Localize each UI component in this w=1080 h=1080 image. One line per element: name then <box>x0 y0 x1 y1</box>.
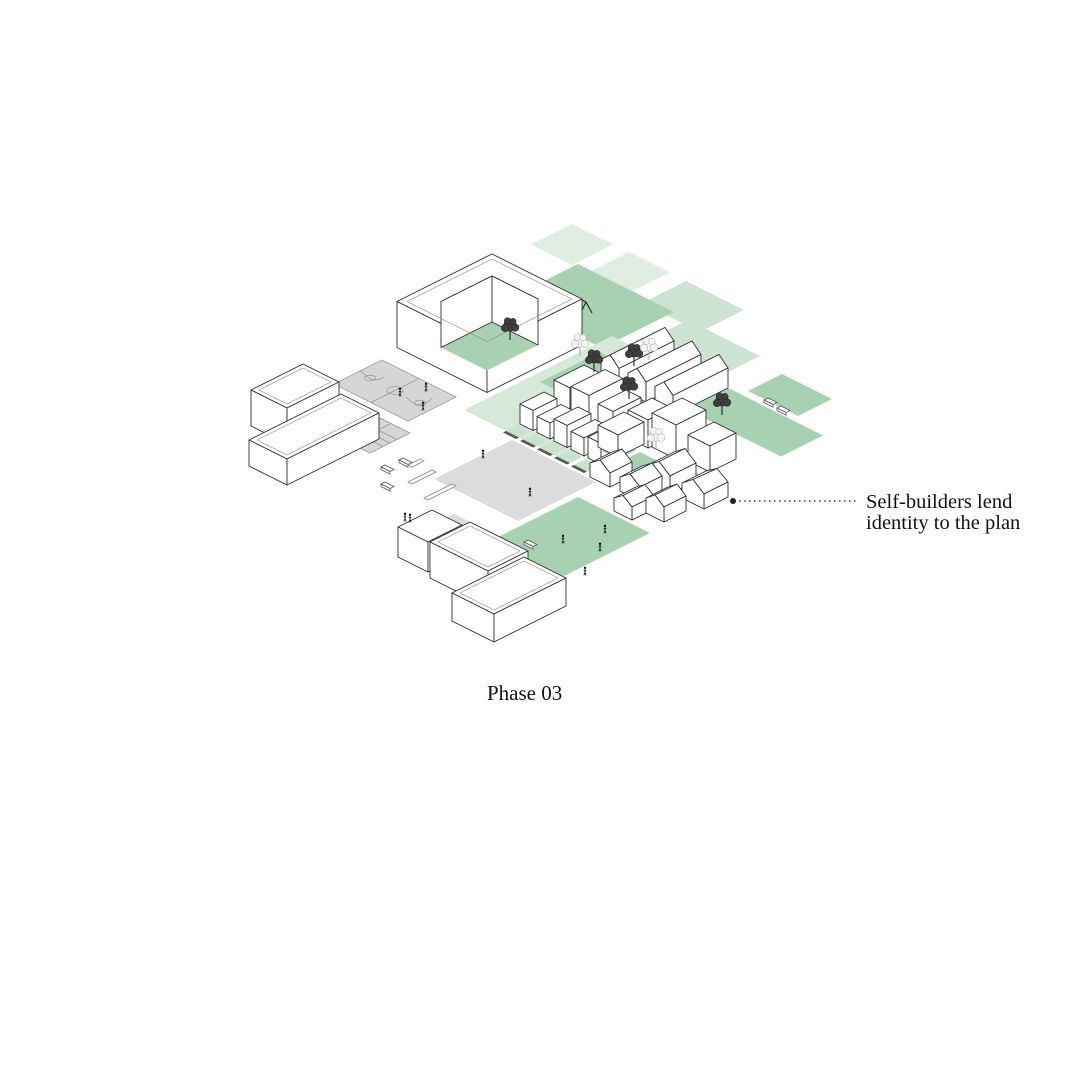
bench-icon <box>381 482 394 491</box>
person-icon <box>404 513 407 522</box>
annotation: Self-builders lend identity to the plan <box>730 491 1020 534</box>
person-icon <box>584 567 587 576</box>
axonometric-diagram: Self-builders lend identity to the plan … <box>0 0 1080 1080</box>
annotation-label-line2: identity to the plan <box>866 512 1020 534</box>
phase-caption: Phase 03 <box>487 681 562 705</box>
leader-dot <box>730 498 736 504</box>
bench-icon <box>381 465 394 474</box>
phase-diagram-page: Self-builders lend identity to the plan … <box>0 0 1080 1080</box>
annotation-label-line1: Self-builders lend <box>866 491 1012 513</box>
